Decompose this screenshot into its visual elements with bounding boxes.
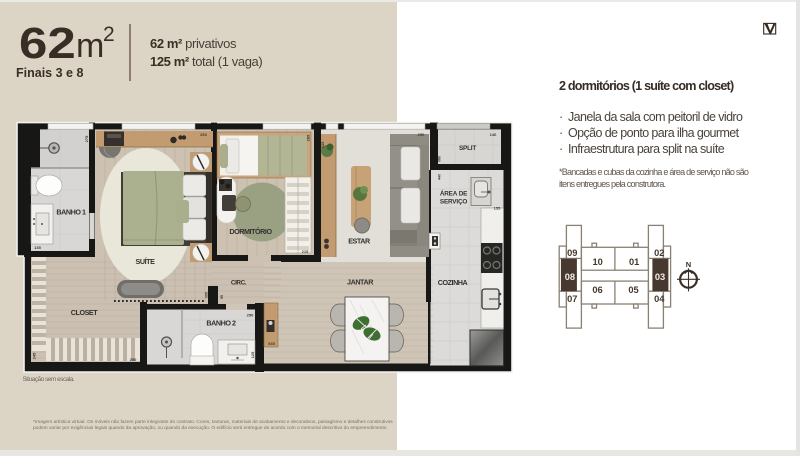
svg-text:04: 04 (654, 294, 665, 304)
svg-text:215: 215 (302, 249, 309, 254)
svg-text:BANHO 1: BANHO 1 (56, 208, 86, 217)
svg-text:01: 01 (629, 257, 639, 267)
svg-text:03: 03 (655, 272, 665, 282)
svg-text:146: 146 (490, 132, 497, 137)
svg-text:545: 545 (268, 341, 275, 346)
svg-text:440: 440 (438, 174, 442, 180)
svg-text:95: 95 (220, 295, 224, 299)
svg-text:080: 080 (438, 156, 442, 162)
svg-text:535: 535 (320, 141, 325, 148)
svg-text:095: 095 (205, 292, 209, 298)
svg-text:08: 08 (565, 272, 575, 282)
svg-text:CIRC.: CIRC. (231, 279, 247, 286)
svg-text:05: 05 (628, 285, 638, 295)
svg-text:250: 250 (418, 132, 425, 137)
svg-text:06: 06 (592, 285, 602, 295)
svg-text:COZINHA: COZINHA (438, 278, 468, 287)
svg-text:07: 07 (567, 294, 577, 304)
svg-text:250: 250 (130, 357, 137, 362)
svg-text:125: 125 (250, 351, 255, 358)
svg-text:SPLIT: SPLIT (459, 145, 476, 152)
svg-text:09: 09 (567, 248, 577, 258)
svg-text:245: 245 (31, 352, 36, 359)
svg-text:ÁREA DE: ÁREA DE (440, 189, 468, 198)
svg-text:SERVIÇO: SERVIÇO (440, 199, 467, 206)
svg-text:ESTAR: ESTAR (348, 236, 371, 245)
svg-text:DORMITÓRIO: DORMITÓRIO (229, 227, 272, 236)
svg-text:10: 10 (593, 257, 603, 267)
svg-text:260: 260 (200, 132, 207, 137)
svg-text:N: N (686, 260, 691, 269)
svg-text:JANTAR: JANTAR (347, 278, 374, 287)
svg-text:155: 155 (494, 206, 501, 211)
svg-text:CLOSET: CLOSET (71, 308, 99, 317)
svg-text:SUÍTE: SUÍTE (136, 257, 156, 266)
svg-text:250: 250 (247, 313, 254, 318)
svg-text:BANHO 2: BANHO 2 (206, 319, 236, 328)
svg-text:285: 285 (305, 134, 310, 141)
svg-text:135: 135 (34, 245, 41, 250)
svg-text:02: 02 (654, 248, 664, 258)
svg-text:275: 275 (84, 135, 89, 142)
